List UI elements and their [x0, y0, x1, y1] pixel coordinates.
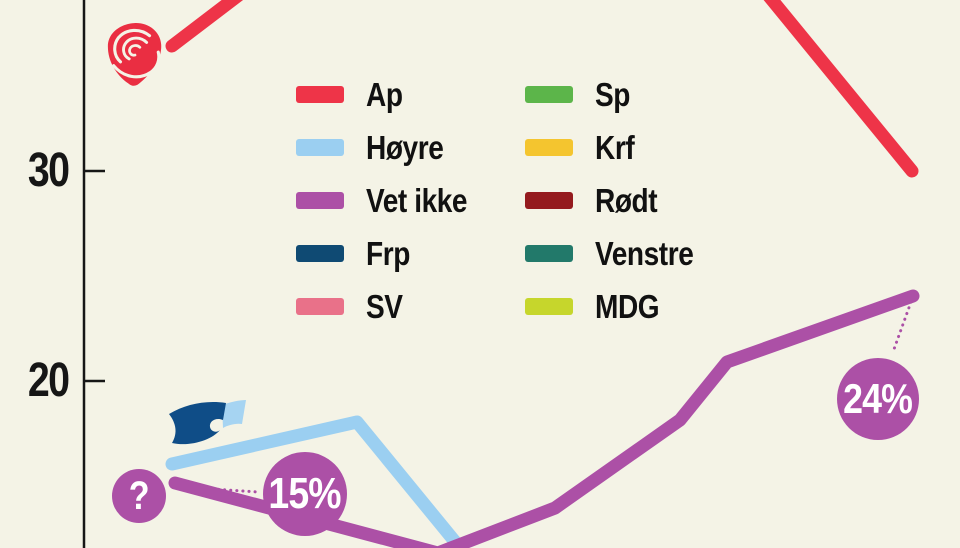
legend-item-label: Rødt	[595, 182, 668, 220]
question-mark-bubble: ?	[112, 469, 166, 523]
legend-color-swatch	[525, 139, 573, 156]
legend-item-venstre: Venstre	[525, 227, 711, 280]
legend-item-label: Krf	[595, 129, 641, 167]
legend-color-swatch	[525, 86, 573, 103]
legend-column-right: Sp Krf Rødt Venstre MDG	[525, 68, 711, 333]
legend-item-label: Ap	[366, 76, 409, 114]
vet-ikke-start-value-bubble: 15%	[263, 452, 347, 536]
vet-ikke-end-value-bubble: 24%	[837, 358, 919, 440]
legend-item-r-dt: Rødt	[525, 174, 711, 227]
legend-color-swatch	[296, 192, 344, 209]
connector-24pct	[893, 302, 911, 352]
legend-item-vet-ikke: Vet ikke	[296, 174, 485, 227]
legend-item-ap: Ap	[296, 68, 485, 121]
legend-item-h-yre: Høyre	[296, 121, 485, 174]
legend-item-label: MDG	[595, 288, 671, 326]
ap-rose-logo	[104, 22, 166, 90]
legend-color-swatch	[525, 298, 573, 315]
legend-item-mdg: MDG	[525, 280, 711, 333]
legend-item-label: Sp	[595, 76, 636, 114]
legend-item-label: SV	[366, 288, 409, 326]
legend-color-swatch	[296, 139, 344, 156]
legend-item-label: Venstre	[595, 235, 711, 273]
legend-color-swatch	[525, 245, 573, 262]
legend-item-sv: SV	[296, 280, 485, 333]
legend-column-left: Ap Høyre Vet ikke Frp SV	[296, 68, 485, 333]
legend-color-swatch	[296, 245, 344, 262]
y-axis-label-30: 30	[8, 145, 68, 197]
legend-item-sp: Sp	[525, 68, 711, 121]
y-axis-label-20: 20	[8, 355, 68, 407]
legend-item-label: Vet ikke	[366, 182, 485, 220]
legend-item-krf: Krf	[525, 121, 711, 174]
legend-item-label: Frp	[366, 235, 418, 273]
legend-color-swatch	[525, 192, 573, 209]
legend-item-frp: Frp	[296, 227, 485, 280]
hoyre-flag-logo	[166, 397, 250, 449]
poll-line-chart: 30 20 ? 15% 24% Ap Høyre	[0, 0, 960, 548]
legend-item-label: Høyre	[366, 129, 457, 167]
legend-color-swatch	[296, 86, 344, 103]
legend-color-swatch	[296, 298, 344, 315]
